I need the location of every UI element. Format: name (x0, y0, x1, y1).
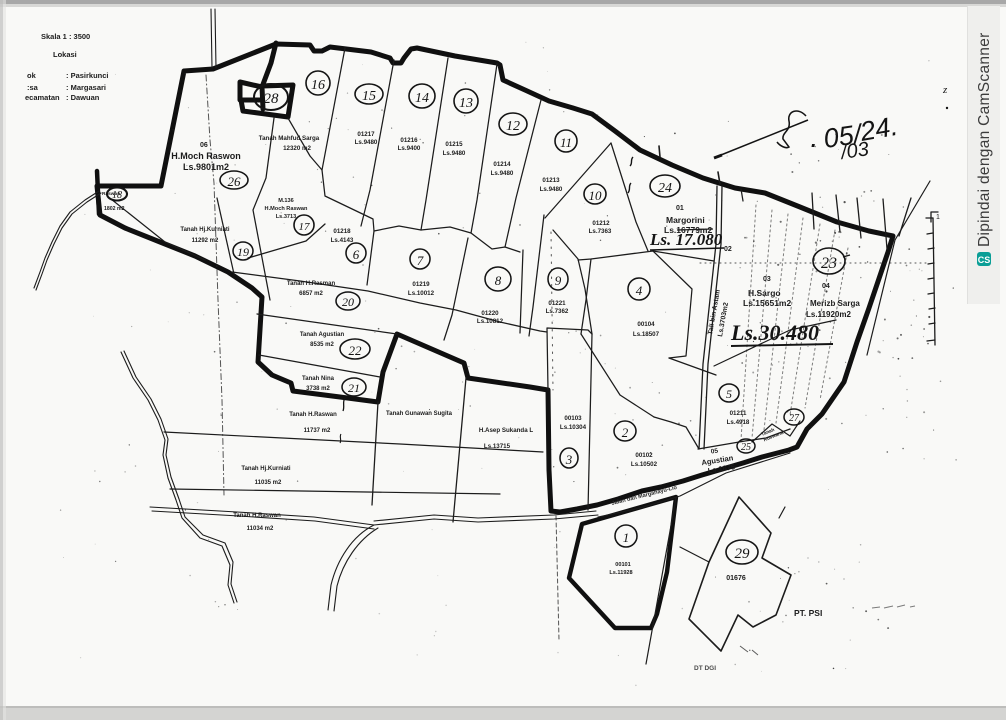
svg-text:01219: 01219 (412, 281, 430, 288)
svg-text:H.Asep Sukanda L: H.Asep Sukanda L (479, 427, 534, 434)
svg-text:Tanah Agustian: Tanah Agustian (300, 332, 345, 338)
svg-text:04: 04 (822, 283, 830, 290)
svg-text:1: 1 (936, 214, 940, 221)
svg-text:14: 14 (415, 91, 429, 106)
svg-text:Ls.10812: Ls.10812 (477, 318, 504, 325)
svg-text:01213: 01213 (542, 177, 560, 184)
svg-text:01217: 01217 (357, 131, 375, 138)
svg-text:Tanah Hj.Kurniati: Tanah Hj.Kurniati (241, 466, 291, 472)
svg-text:26: 26 (228, 174, 242, 189)
svg-text:Ls.15651m2: Ls.15651m2 (743, 298, 791, 308)
svg-text:Merizb Sarga: Merizb Sarga (810, 299, 860, 308)
svg-text:22: 22 (349, 343, 363, 358)
svg-text:Ls.4918: Ls.4918 (727, 419, 750, 426)
svg-text:19: 19 (237, 245, 249, 259)
svg-text:4: 4 (636, 283, 643, 298)
svg-text:H.Moch Raswan: H.Moch Raswan (265, 206, 308, 212)
svg-text:Ls.11928: Ls.11928 (609, 570, 632, 576)
svg-text:7: 7 (417, 253, 424, 268)
svg-text:00104: 00104 (637, 321, 655, 328)
svg-text:01211: 01211 (730, 410, 747, 417)
svg-text:/03: /03 (838, 138, 871, 164)
svg-text:Tanah Mahfud Sarga: Tanah Mahfud Sarga (259, 135, 320, 142)
svg-text:8535 m2: 8535 m2 (310, 342, 334, 348)
svg-text:Ls.9801m2: Ls.9801m2 (183, 162, 229, 172)
svg-text:01215: 01215 (445, 141, 463, 148)
svg-text:Ls.9480: Ls.9480 (540, 186, 563, 193)
svg-text:Tanah H.Raswan: Tanah H.Raswan (289, 412, 337, 418)
svg-text:Ls.9480: Ls.9480 (491, 170, 514, 177)
svg-text:05: 05 (710, 448, 719, 456)
svg-text:M.136: M.136 (278, 198, 294, 204)
svg-text:5: 5 (726, 387, 732, 401)
svg-text:Skala 1 : 3500: Skala 1 : 3500 (41, 32, 90, 41)
svg-text:20: 20 (342, 295, 354, 309)
svg-text:Tanah H.Rasman: Tanah H.Rasman (287, 281, 336, 287)
svg-text:12320 m2: 12320 m2 (283, 145, 311, 152)
svg-text:06: 06 (200, 142, 208, 149)
svg-text:01220: 01220 (481, 310, 499, 317)
svg-text:6: 6 (353, 247, 360, 262)
svg-text:: Margasari: : Margasari (66, 83, 106, 92)
svg-text:02: 02 (724, 246, 732, 253)
svg-text:28: 28 (264, 91, 280, 107)
svg-text:8: 8 (495, 273, 502, 288)
svg-text:12: 12 (506, 119, 520, 134)
svg-text:Ls.10304: Ls.10304 (560, 424, 587, 431)
svg-text:Dipindai dengan CamScanner: Dipindai dengan CamScanner (976, 32, 993, 247)
svg-text:Ls.3713: Ls.3713 (276, 214, 297, 220)
svg-text:9: 9 (555, 273, 562, 288)
svg-text:Ls.10012: Ls.10012 (408, 290, 435, 297)
svg-text:Ls.9480: Ls.9480 (443, 150, 466, 157)
svg-text:CS: CS (978, 255, 991, 265)
svg-text:00101: 00101 (615, 562, 631, 568)
svg-text:01: 01 (676, 205, 684, 212)
svg-text:11034 m2: 11034 m2 (247, 526, 274, 532)
svg-text:17: 17 (299, 221, 311, 233)
svg-text:3738 m2: 3738 m2 (306, 386, 330, 392)
svg-text:11292 m2: 11292 m2 (192, 238, 219, 244)
svg-text:23: 23 (821, 255, 837, 272)
svg-text:H.Sargo: H.Sargo (748, 288, 781, 298)
svg-text:Ls.18507: Ls.18507 (633, 331, 660, 338)
svg-text:: Dawuan: : Dawuan (66, 93, 100, 102)
svg-text:01212: 01212 (592, 220, 610, 227)
svg-text:Ls.30.480: Ls.30.480 (730, 320, 819, 345)
svg-text:Ls.7362: Ls.7362 (546, 308, 569, 315)
svg-text:H.Moch Raswon: H.Moch Raswon (171, 151, 241, 161)
svg-text:Ls.11920m2: Ls.11920m2 (806, 310, 851, 319)
svg-text:6857 m2: 6857 m2 (299, 291, 323, 297)
svg-text:01676: 01676 (726, 575, 746, 582)
svg-text:ok: ok (27, 71, 37, 80)
svg-text:2: 2 (622, 425, 629, 440)
svg-text:Lokasi: Lokasi (53, 50, 77, 59)
svg-text:Ls. 17.080: Ls. 17.080 (649, 230, 723, 249)
svg-text:Ls.10502: Ls.10502 (631, 461, 658, 468)
svg-text:PT. PSI: PT. PSI (794, 608, 822, 618)
svg-text:01214: 01214 (493, 161, 511, 168)
svg-text:01218: 01218 (333, 228, 351, 235)
svg-text:Ls.9400: Ls.9400 (398, 145, 421, 152)
svg-text:11: 11 (560, 135, 572, 150)
svg-text:Tanah Gunawan Sugita: Tanah Gunawan Sugita (386, 411, 453, 417)
svg-text:11035 m2: 11035 m2 (255, 480, 282, 486)
svg-text:18: 18 (112, 190, 122, 201)
svg-text:13: 13 (459, 96, 473, 111)
svg-text:03: 03 (763, 276, 771, 283)
svg-text::sa: :sa (27, 83, 39, 92)
svg-text:24: 24 (658, 181, 672, 196)
svg-text:16: 16 (311, 78, 325, 93)
svg-text:Margorini: Margorini (666, 215, 705, 225)
svg-text:00103: 00103 (564, 415, 582, 422)
svg-text:Ls.13715: Ls.13715 (484, 443, 511, 450)
svg-text:29: 29 (735, 546, 751, 562)
svg-text:Ls.7363: Ls.7363 (589, 228, 612, 235)
svg-text:25: 25 (741, 442, 751, 453)
svg-text:10: 10 (589, 188, 603, 203)
svg-text:Ls.9480: Ls.9480 (355, 139, 378, 146)
svg-text:15: 15 (362, 89, 376, 104)
svg-text:Tanah H.Raswan: Tanah H.Raswan (233, 513, 281, 519)
svg-text:3: 3 (565, 452, 573, 467)
svg-text:DT DGI: DT DGI (694, 665, 716, 672)
svg-text:01221: 01221 (548, 300, 566, 307)
svg-text:01216: 01216 (400, 137, 418, 144)
svg-text:11737 m2: 11737 m2 (304, 428, 331, 434)
svg-text:z: z (942, 84, 948, 96)
svg-text:1802 m2: 1802 m2 (104, 206, 125, 212)
svg-text:: Pasirkunci: : Pasirkunci (66, 71, 109, 80)
svg-text:Tanah Hj.Kurniati: Tanah Hj.Kurniati (180, 227, 230, 233)
svg-text:.: . (811, 130, 817, 152)
svg-text:1: 1 (623, 530, 630, 545)
svg-text:21: 21 (348, 381, 360, 395)
svg-text:ecamatan: ecamatan (25, 93, 60, 102)
svg-text:Tanah Nina: Tanah Nina (302, 376, 335, 382)
svg-text:Ls.4143: Ls.4143 (331, 237, 354, 244)
